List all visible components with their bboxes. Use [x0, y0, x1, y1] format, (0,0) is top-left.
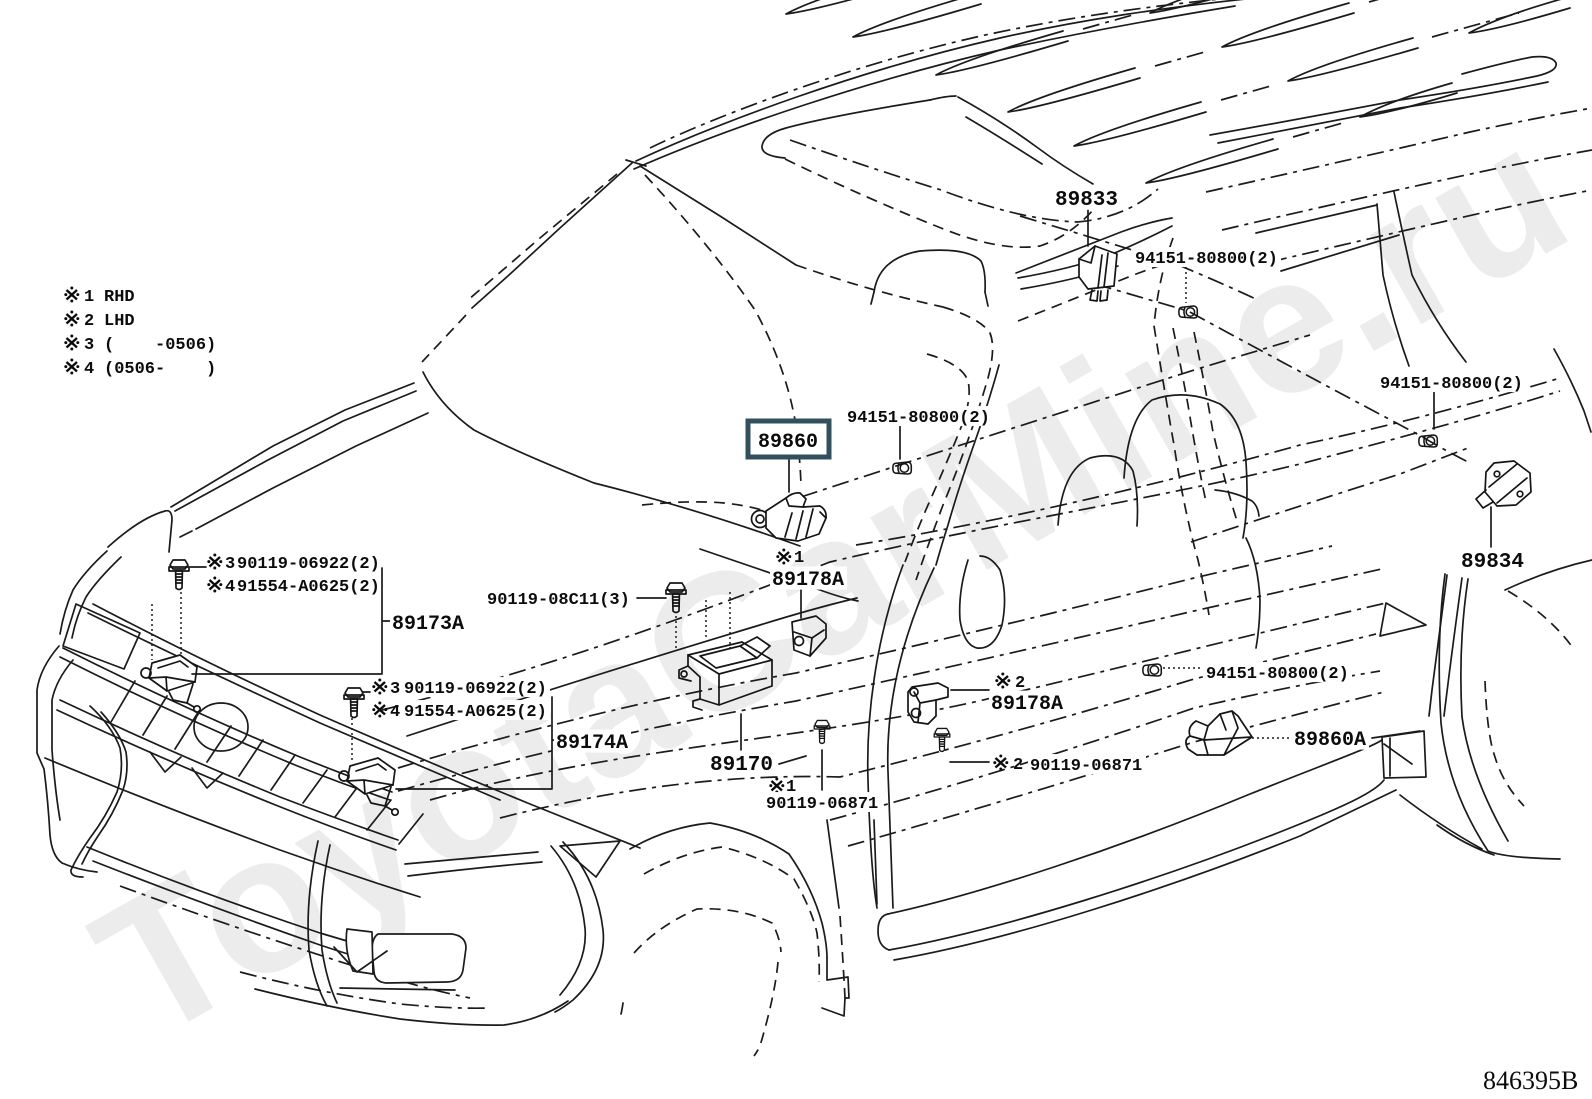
svg-text:4: 4 [84, 360, 94, 379]
svg-text:89860A: 89860A [1294, 729, 1366, 752]
svg-text:( -0506): ( -0506) [104, 336, 216, 355]
svg-text:4: 4 [390, 703, 400, 722]
svg-text:846395B: 846395B [1483, 1066, 1578, 1095]
svg-text:3: 3 [390, 680, 400, 699]
svg-text:89174A: 89174A [556, 732, 628, 755]
svg-text:4: 4 [225, 578, 235, 597]
svg-text:90119-06871: 90119-06871 [1030, 757, 1142, 776]
svg-text:90119-06922(2): 90119-06922(2) [404, 680, 547, 699]
svg-text:91554-A0625(2): 91554-A0625(2) [404, 703, 547, 722]
svg-text:LHD: LHD [104, 312, 135, 331]
svg-text:3: 3 [225, 555, 235, 574]
svg-text:2: 2 [1013, 756, 1023, 775]
svg-text:2: 2 [84, 312, 94, 331]
svg-text:1: 1 [794, 549, 804, 568]
svg-text:94151-80800(2): 94151-80800(2) [1380, 375, 1523, 394]
svg-text:89170: 89170 [710, 754, 773, 777]
svg-text:90119-06871: 90119-06871 [766, 795, 878, 814]
svg-text:89178A: 89178A [772, 569, 844, 592]
svg-text:89860: 89860 [758, 431, 818, 454]
svg-text:91554-A0625(2): 91554-A0625(2) [237, 578, 380, 597]
svg-text:89173A: 89173A [392, 613, 464, 636]
svg-text:2: 2 [1015, 674, 1025, 693]
svg-text:3: 3 [84, 336, 94, 355]
svg-text:89178A: 89178A [991, 693, 1063, 716]
svg-text:89833: 89833 [1055, 189, 1118, 212]
svg-text:94151-80800(2): 94151-80800(2) [1135, 250, 1278, 269]
svg-text:1: 1 [84, 288, 94, 307]
svg-text:(0506- ): (0506- ) [104, 360, 216, 379]
svg-text:94151-80800(2): 94151-80800(2) [847, 409, 990, 428]
svg-text:RHD: RHD [104, 288, 135, 307]
svg-text:94151-80800(2): 94151-80800(2) [1206, 665, 1349, 684]
svg-text:90119-08C11(3): 90119-08C11(3) [487, 591, 630, 610]
svg-text:89834: 89834 [1461, 551, 1524, 574]
svg-text:90119-06922(2): 90119-06922(2) [237, 555, 380, 574]
